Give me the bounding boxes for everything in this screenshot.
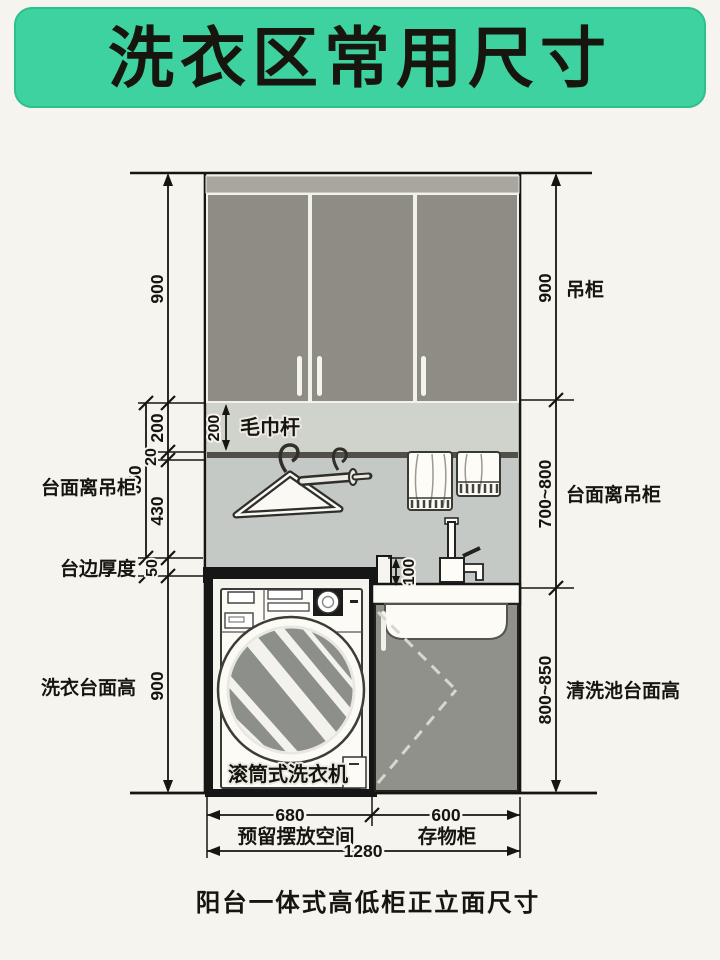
sink-countertop — [372, 584, 520, 604]
label-wall-cabinet: 吊柜 — [566, 279, 604, 301]
label-counter-edge-thickness: 台边厚度 — [60, 557, 137, 580]
dim-left-hang-space: 430 — [147, 496, 167, 525]
dim-left-cabinet-height: 900 — [147, 274, 167, 303]
cabinet-handle-3 — [421, 356, 426, 396]
diagram-caption: 阳台一体式高低柜正立面尺寸 — [196, 888, 541, 917]
dim-total-width: 1280 — [344, 841, 383, 861]
dim-right-counter-to-cabinet: 700~800 — [535, 459, 555, 528]
washer-section: 滚筒式洗衣机 — [203, 567, 379, 793]
sink-basin — [385, 604, 507, 639]
title-banner: 洗衣区常用尺寸 — [15, 8, 705, 107]
dim-washer-space: 680 — [275, 805, 304, 825]
display-window — [268, 590, 302, 599]
label-sink-counter-height: 清洗池台面高 — [566, 679, 680, 702]
power-button — [350, 600, 358, 603]
label-washer-space: 预留摆放空间 — [237, 825, 354, 848]
laundry-dimension-diagram: 洗衣区常用尺寸 — [0, 0, 720, 960]
wall-cabinet-door-1 — [207, 194, 309, 402]
dim-left-trim: 20 — [143, 448, 160, 466]
wall-cabinet — [206, 176, 519, 402]
detergent-drawer — [228, 592, 254, 603]
dim-towel-bar-drop: 200 — [206, 415, 223, 442]
bottom-dimensions: 680 600 预留摆放空间 存物柜 1280 — [207, 797, 520, 861]
washing-machine-label: 滚筒式洗衣机 — [228, 762, 348, 786]
label-towel-bar: 毛巾杆 — [240, 415, 300, 439]
page-title: 洗衣区常用尺寸 — [108, 21, 612, 95]
dim-right-cabinet-height: 900 — [535, 273, 555, 302]
dim-storage-cabinet: 600 — [431, 805, 460, 825]
towel-1 — [408, 452, 452, 510]
washing-machine: 滚筒式洗衣机 — [214, 589, 372, 788]
dim-right-sink-counter-height: 800~850 — [535, 655, 555, 724]
button-strip — [268, 603, 309, 611]
towel-2 — [457, 452, 500, 496]
cabinet-handle-1 — [297, 356, 302, 396]
wall-cabinet-top-strip — [206, 176, 519, 193]
label-counter-to-cabinet-left: 台面离吊柜 — [41, 476, 136, 499]
label-storage-cabinet: 存物柜 — [418, 825, 477, 848]
dim-left-washer-counter-height: 900 — [147, 671, 167, 700]
cabinet-handle-2 — [317, 356, 322, 396]
program-knob — [317, 591, 339, 613]
label-washer-counter-height: 洗衣台面高 — [41, 676, 136, 699]
left-dimension-chain: 900 200 20 650 430 50 900 台面离吊柜 台边厚度 洗衣台… — [41, 173, 205, 793]
label-counter-to-cabinet-right: 台面离吊柜 — [566, 483, 661, 506]
wall-cabinet-door-3 — [416, 194, 518, 402]
dim-left-counter-thickness: 50 — [144, 559, 161, 577]
dim-left-towel-zone: 200 — [147, 413, 167, 442]
counter-step — [377, 556, 391, 586]
right-dimension-chain: 900 700~800 800~850 吊柜 台面离吊柜 清洗池台面高 — [520, 173, 680, 793]
wall-cabinet-door-2 — [311, 194, 414, 402]
dim-counter-step: 100 — [401, 559, 418, 586]
